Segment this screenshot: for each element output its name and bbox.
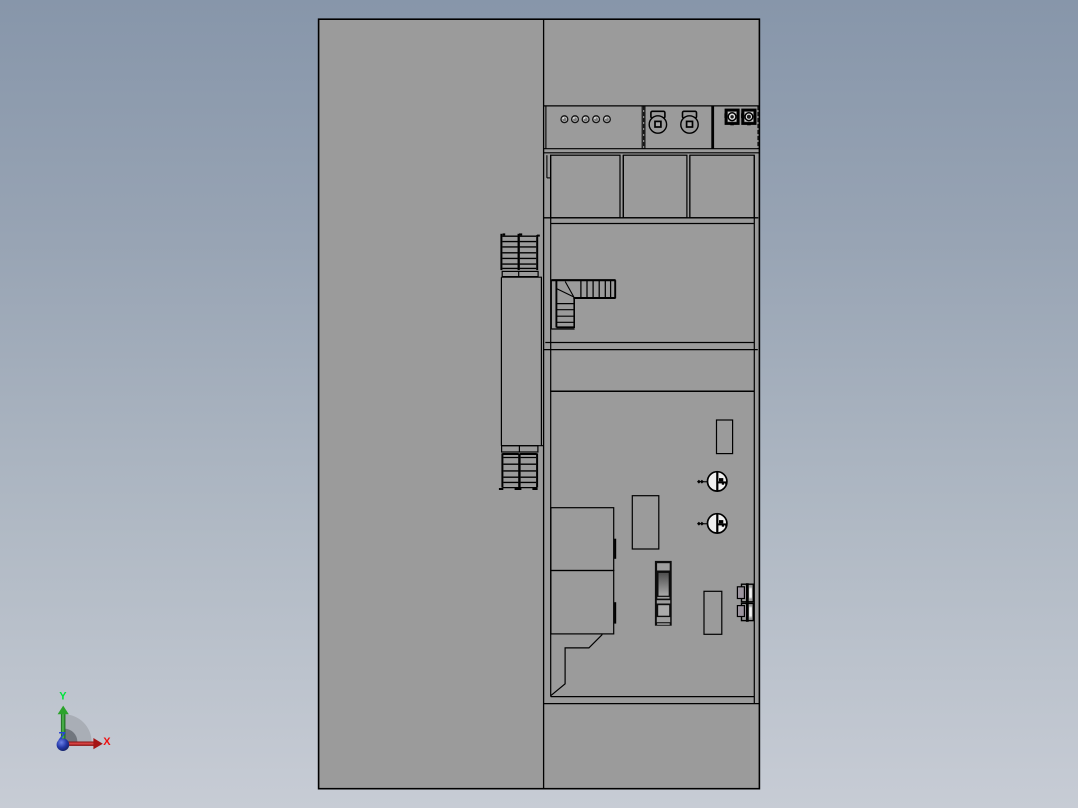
svg-text:X: X — [103, 736, 111, 748]
svg-text:Y: Y — [59, 691, 67, 703]
